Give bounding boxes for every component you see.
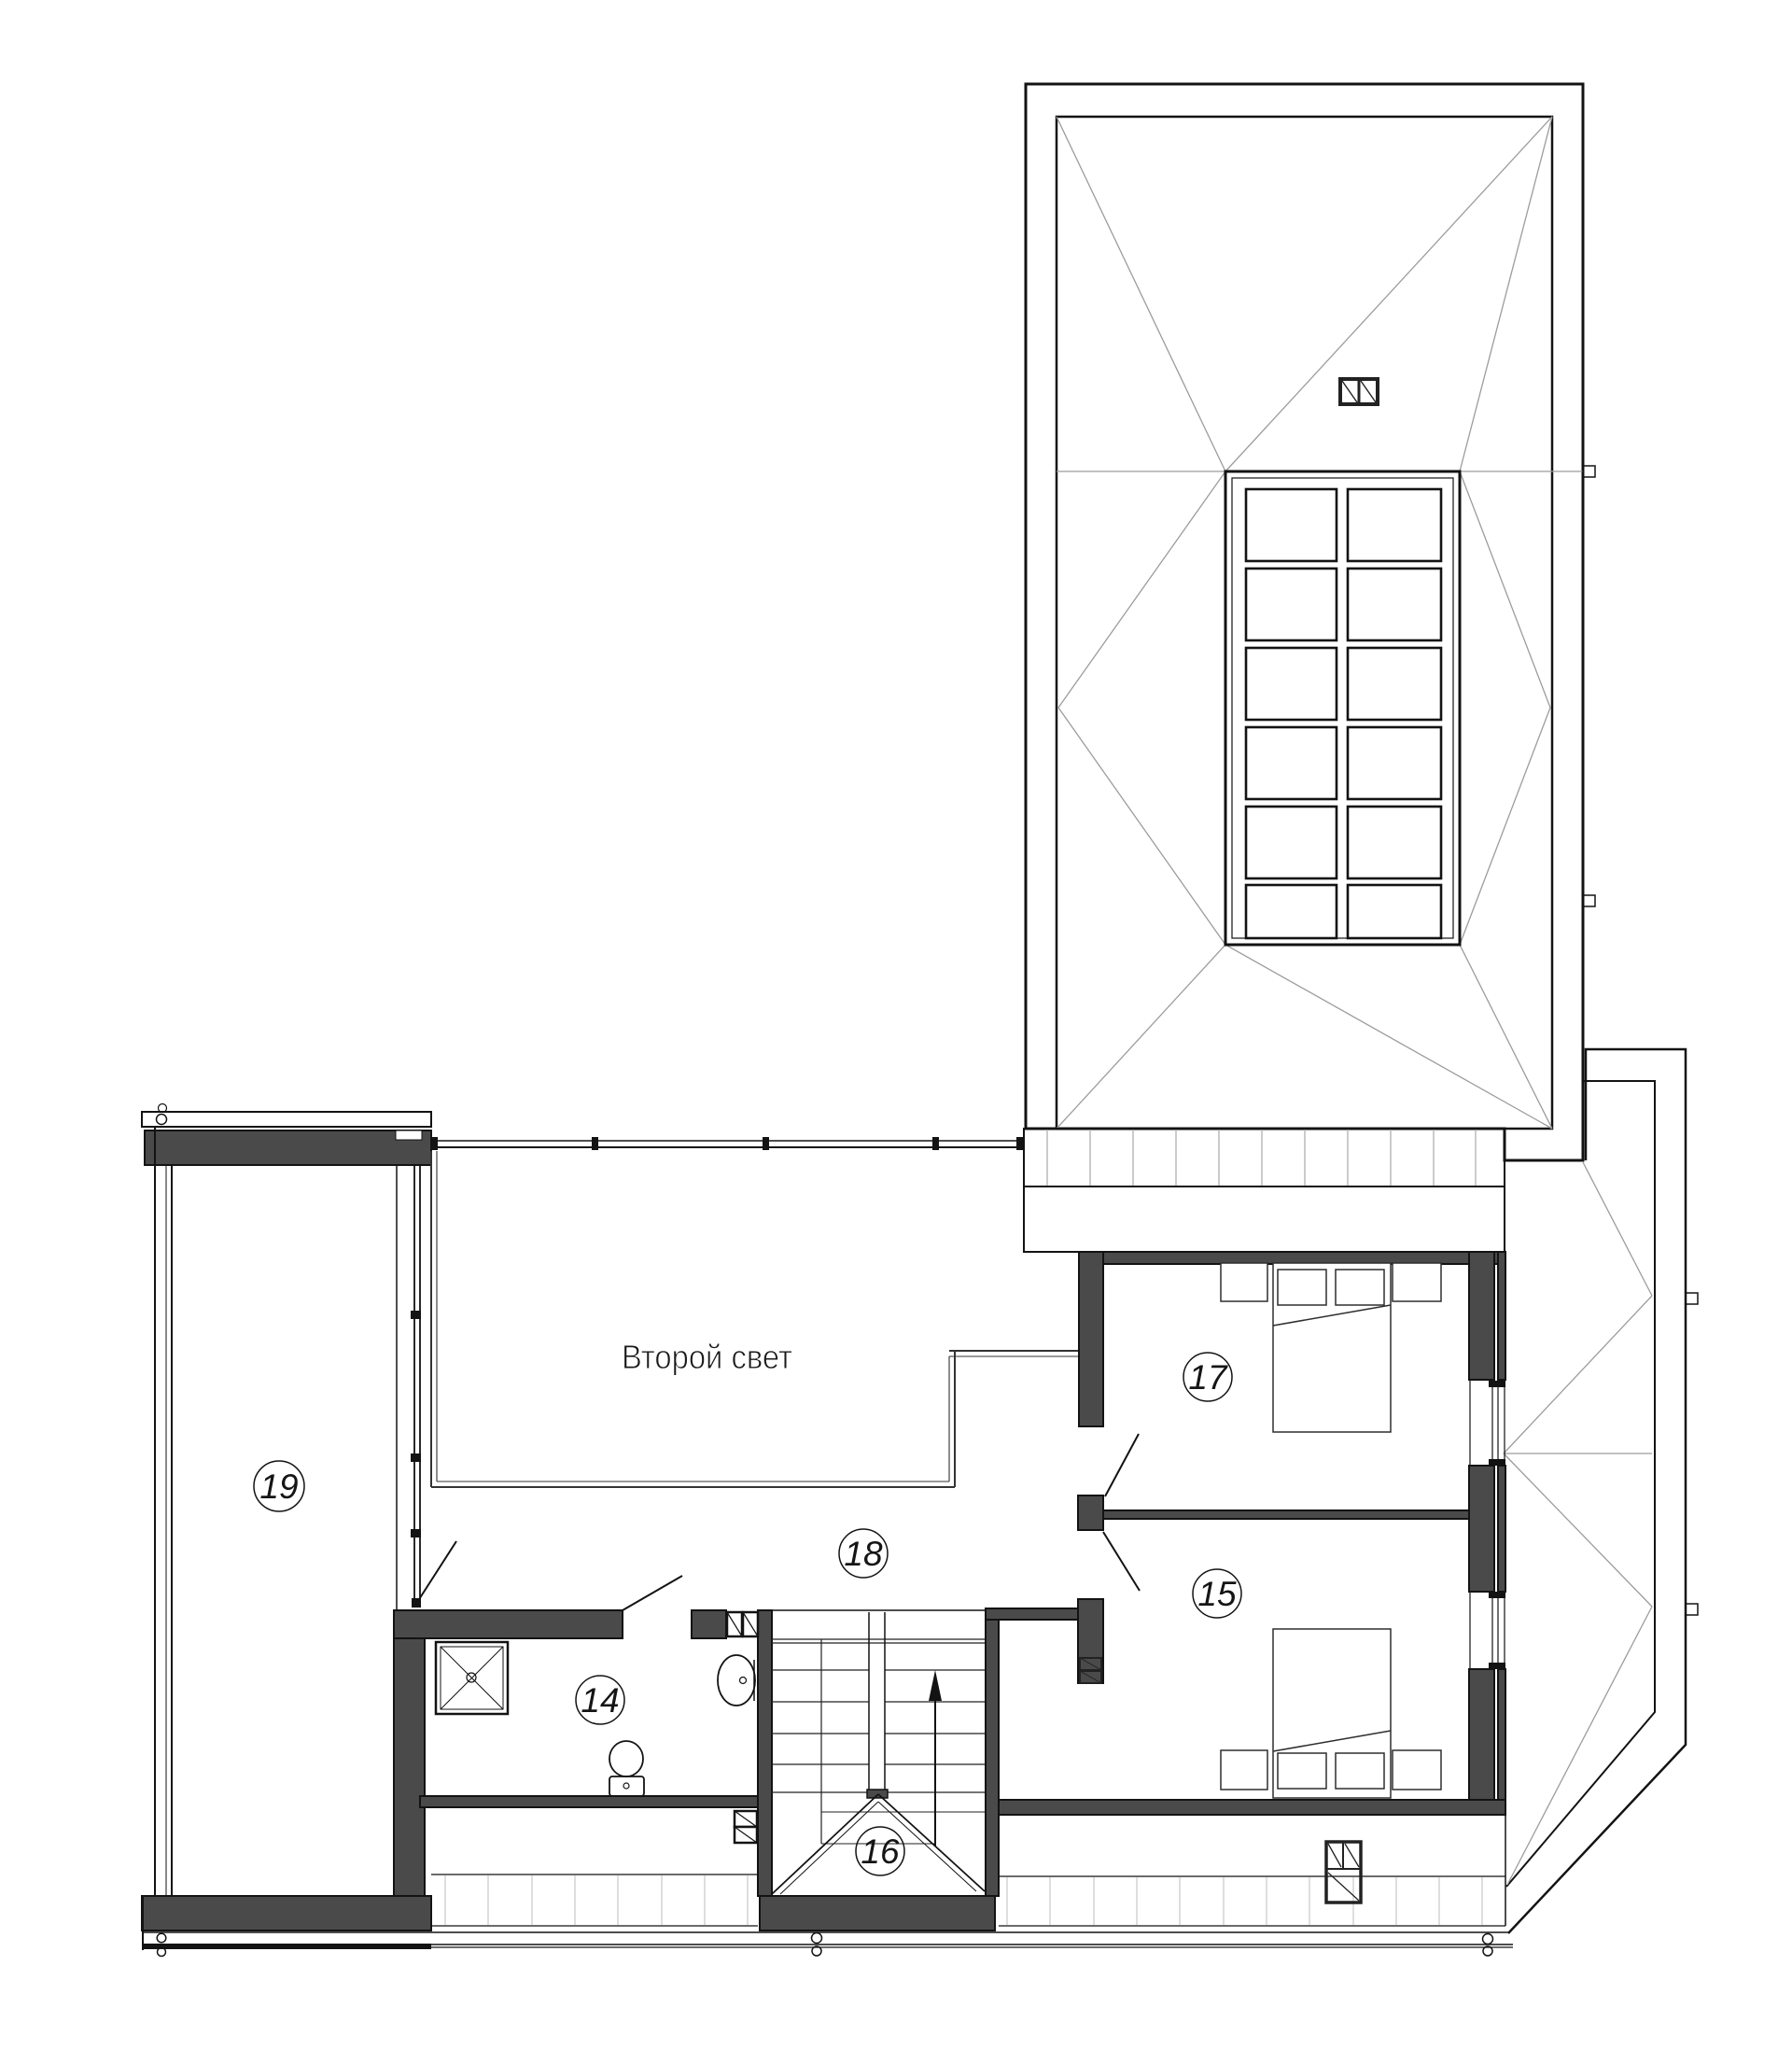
- svg-text:19: 19: [259, 1467, 298, 1506]
- svg-text:17: 17: [1188, 1358, 1228, 1397]
- svg-text:16: 16: [861, 1832, 900, 1871]
- svg-text:15: 15: [1197, 1575, 1237, 1613]
- svg-text:14: 14: [581, 1681, 619, 1720]
- svg-text:Второй свет: Второй свет: [622, 1338, 792, 1376]
- svg-text:18: 18: [844, 1535, 883, 1573]
